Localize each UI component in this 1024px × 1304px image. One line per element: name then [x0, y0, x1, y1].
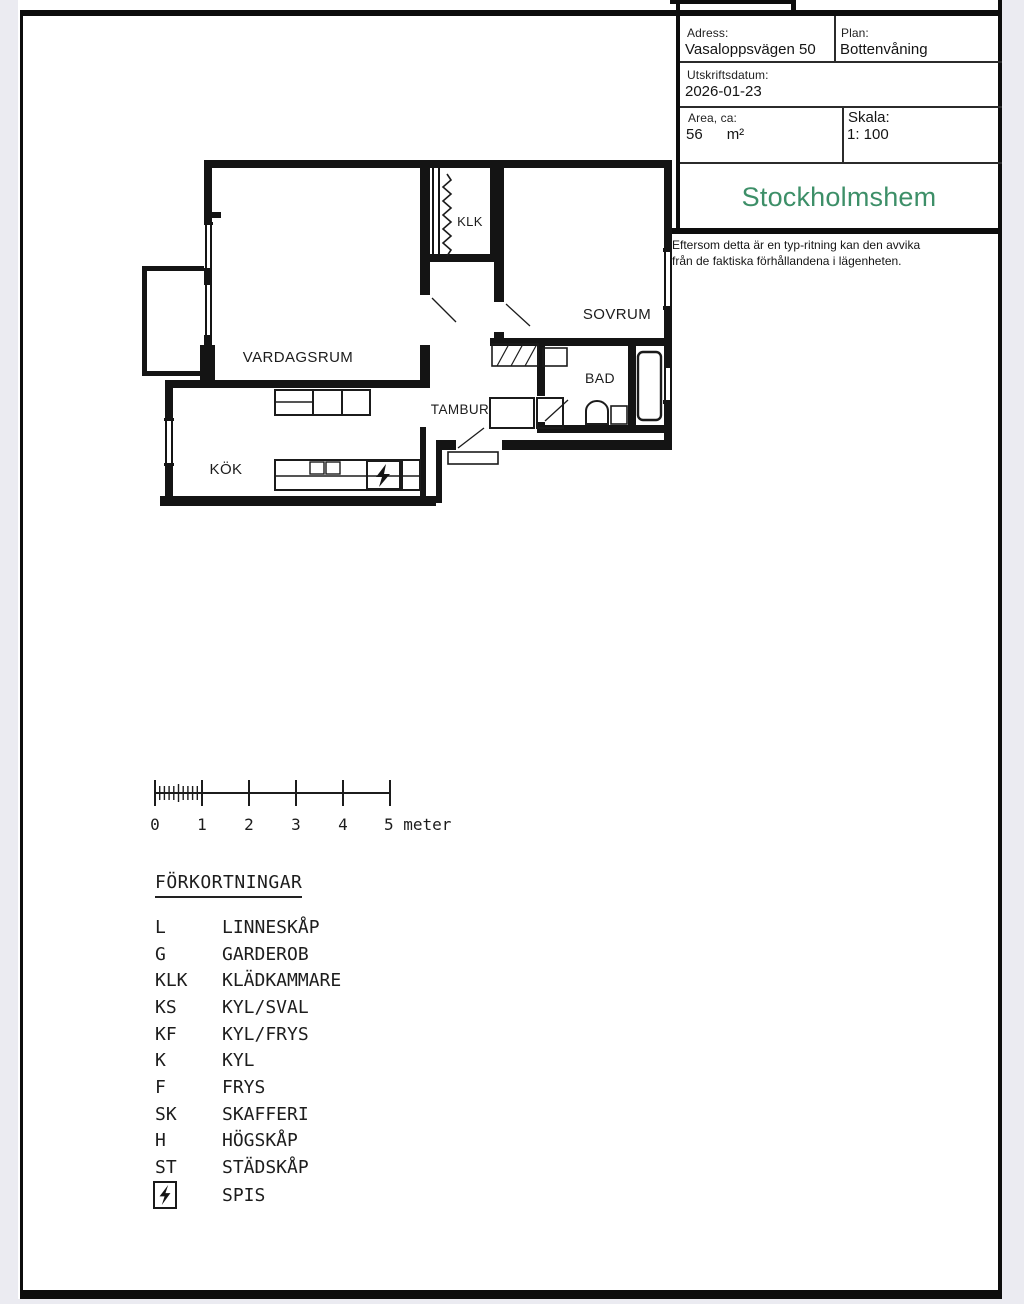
scale-label-4: 4	[338, 815, 348, 834]
legend-abbr: KLK	[155, 970, 222, 991]
room-label-tambur: TAMBUR	[431, 402, 489, 417]
legend-name: KYL/FRYS	[222, 1024, 435, 1045]
legend-row-klk: KLK KLÄDKAMMARE	[155, 967, 435, 994]
legend-abbr: H	[155, 1130, 222, 1151]
top-crop-fragment-v1	[791, 0, 796, 14]
plan-walls	[142, 160, 672, 506]
legend-row-f: F FRYS	[155, 1074, 435, 1101]
legend-title: FÖRKORTNINGAR	[155, 872, 302, 898]
scale-value: 1: 100	[847, 126, 889, 143]
legend-name: GARDEROB	[222, 944, 435, 965]
legend-row-spis: SPIS	[155, 1181, 435, 1211]
room-label-kok: KÖK	[210, 460, 243, 478]
legend-row-ks: KS KYL/SVAL	[155, 994, 435, 1021]
legend-abbr: SK	[155, 1104, 222, 1125]
legend-row-h: H HÖGSKÅP	[155, 1128, 435, 1155]
scale-label-1: 1	[197, 815, 207, 834]
info-panel-divider-v1	[834, 16, 836, 61]
legend-row-k: K KYL	[155, 1047, 435, 1074]
top-crop-fragment-v3	[998, 0, 1002, 10]
plan-value: Bottenvåning	[840, 41, 928, 58]
legend-row-kf: KF KYL/FRYS	[155, 1021, 435, 1048]
sink-icon	[611, 406, 627, 424]
page-border-top	[20, 10, 1002, 16]
stockholmshem-logo: Stockholmshem	[678, 182, 1000, 213]
stove-lightning-icon	[376, 464, 390, 487]
legend-abbr: KF	[155, 1024, 222, 1045]
scale-label-5-meter: 5 meter	[384, 815, 452, 834]
legend-abbr: K	[155, 1050, 222, 1071]
info-panel-divider-3	[680, 162, 1002, 164]
top-crop-fragment-h	[670, 0, 796, 4]
scale-bar: 0 1 2 3 4 5 meter	[140, 762, 470, 842]
klk-rail-zigzag	[443, 174, 451, 256]
legend-name: KLÄDKAMMARE	[222, 970, 435, 991]
print-date-value: 2026-01-23	[685, 83, 762, 100]
room-label-vardagsrum: VARDAGSRUM	[243, 349, 353, 366]
legend-name: KYL	[222, 1050, 435, 1071]
scale-label-0: 0	[150, 815, 160, 834]
viewer-bottom-margin	[0, 1299, 1024, 1304]
print-date-label: Utskriftsdatum:	[687, 68, 769, 82]
legend-abbr: F	[155, 1077, 222, 1098]
info-panel-divider-2	[680, 106, 1002, 108]
top-crop-fragment-v2	[676, 0, 680, 14]
legend-name: KYL/SVAL	[222, 997, 435, 1018]
abbreviations-legend: FÖRKORTNINGAR L LINNESKÅP G GARDEROB KLK…	[155, 872, 435, 1211]
page-border-left	[20, 10, 23, 1299]
info-panel-divider-1	[680, 61, 1002, 63]
address-value: Vasaloppsvägen 50	[685, 41, 816, 58]
scale-label: Skala:	[848, 109, 890, 126]
legend-row-sk: SK SKAFFERI	[155, 1101, 435, 1128]
legend-abbr: KS	[155, 997, 222, 1018]
toilet-icon	[586, 401, 608, 424]
area-label: Area, ca:	[688, 111, 737, 125]
legend-abbr-spis	[155, 1180, 222, 1211]
legend-name: SPIS	[222, 1185, 435, 1206]
legend-row-g: G GARDEROB	[155, 941, 435, 968]
legend-row-st: ST STÄDSKÅP	[155, 1154, 435, 1181]
scale-bar-labels: 0 1 2 3 4 5 meter	[150, 815, 452, 834]
legend-abbr: L	[155, 917, 222, 938]
legend-name: LINNESKÅP	[222, 917, 435, 938]
page-border-bottom	[20, 1290, 1002, 1299]
legend-row-l: L LINNESKÅP	[155, 914, 435, 941]
legend-name: STÄDSKÅP	[222, 1157, 435, 1178]
disclaimer-line-1: Eftersom detta är en typ-ritning kan den…	[672, 238, 942, 254]
floor-plan-drawing: VARDAGSRUM KÖK TAMBUR SOVRUM BAD KLK	[140, 140, 700, 530]
scale-label-3: 3	[291, 815, 301, 834]
legend-name: FRYS	[222, 1077, 435, 1098]
plan-label: Plan:	[841, 26, 869, 40]
floor-plan-document: Adress: Vasaloppsvägen 50 Plan: Bottenvå…	[0, 0, 1024, 1304]
room-label-klk: KLK	[457, 214, 483, 229]
info-panel-divider-v2	[842, 108, 844, 162]
viewer-right-margin	[1002, 0, 1024, 1304]
room-label-bad: BAD	[585, 370, 615, 386]
disclaimer-text: Eftersom detta är en typ-ritning kan den…	[672, 238, 942, 269]
legend-abbr: ST	[155, 1157, 222, 1178]
viewer-left-margin	[0, 0, 18, 1304]
scale-label-2: 2	[244, 815, 254, 834]
stove-lightning-icon	[153, 1181, 177, 1209]
legend-name: HÖGSKÅP	[222, 1130, 435, 1151]
legend-abbr: G	[155, 944, 222, 965]
address-label: Adress:	[687, 26, 728, 40]
info-panel-bottom-rule	[670, 228, 1002, 234]
bathtub-icon	[638, 352, 661, 420]
room-label-sovrum: SOVRUM	[583, 306, 651, 323]
disclaimer-line-2: från de faktiska förhållandena i lägenhe…	[672, 254, 942, 270]
scale-bar-ticks	[155, 780, 390, 806]
legend-name: SKAFFERI	[222, 1104, 435, 1125]
area-unit: m²	[727, 126, 745, 143]
